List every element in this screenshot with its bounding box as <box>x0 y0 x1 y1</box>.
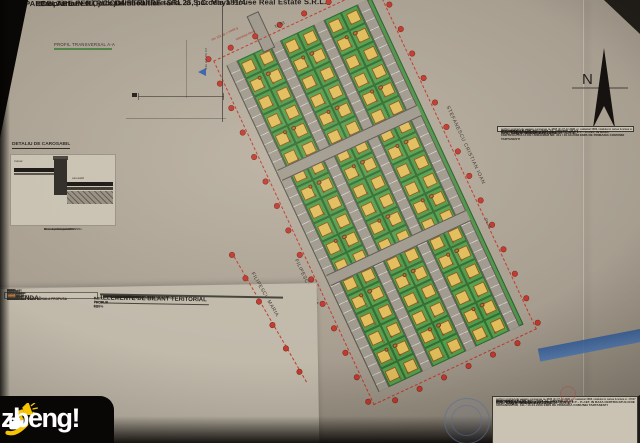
binder-layer <box>67 187 113 190</box>
sidewalk-sublayer <box>14 173 54 175</box>
profile-dimension-line <box>138 96 224 97</box>
carosabil-detail-title: DETALIU DE CAROSABIL <box>12 142 70 149</box>
small-emblem-stamp <box>560 386 576 402</box>
proprietari-box: PROPRIETARI S.C. Copel Imobiliare SRL Su… <box>497 126 634 132</box>
north-label: N <box>582 71 593 88</box>
sidewalk-layer <box>14 168 54 172</box>
watermark-logo: zbeng! <box>0 396 114 443</box>
profile-line <box>222 6 223 122</box>
curb <box>54 159 67 195</box>
round-stamp-inner <box>451 405 482 436</box>
carosabil-detail: DETALIU DE CAROSABIL trotuar carosabil 4… <box>8 142 120 258</box>
profile-marker <box>132 93 137 97</box>
profile-section-label: PROFIL TRANSVERSAL A-A <box>54 42 115 47</box>
north-arrow: N <box>570 46 630 134</box>
profile-line <box>186 40 187 98</box>
layer-note-line: bordura prefabricata 20 x 25 cm <box>44 228 82 232</box>
trotuar-label: trotuar <box>14 159 23 163</box>
dark-edge-left <box>0 0 10 443</box>
puz-note: P.U.Z. IN VEDEREA PARCELARII PENTRU LOCU… <box>501 131 633 142</box>
watermark-text: zbeng! <box>1 403 79 434</box>
carosabil-label: carosabil <box>72 176 84 180</box>
ballast-layer <box>67 191 113 204</box>
plan-title-right: Proprietari: S.C. Copel Imobiliare SRL s… <box>40 0 326 8</box>
zona-verde-label: zona verde <box>204 48 208 70</box>
cut-value: C.U.T. PROPUS 0,9 <box>94 296 109 308</box>
profile-dimension-line <box>126 118 226 119</box>
north-arrow-graphic: N <box>570 46 630 134</box>
plan-photo: • PARCELARE PENTRU CONSTRUIRE – com. Tar… <box>0 0 640 443</box>
profile-underline <box>54 48 112 50</box>
profile-tick <box>223 93 224 100</box>
profile-tick <box>138 93 139 100</box>
proprietari-box-bottom: PROPRIETARI S.C. Copel Imobiliare SRL Su… <box>492 396 638 443</box>
legend: LEGENDA: LIMITE LIMITA ZONEI STUDIATE IN… <box>4 292 98 299</box>
asphalt-layer <box>67 182 113 186</box>
round-stamp <box>444 398 490 443</box>
